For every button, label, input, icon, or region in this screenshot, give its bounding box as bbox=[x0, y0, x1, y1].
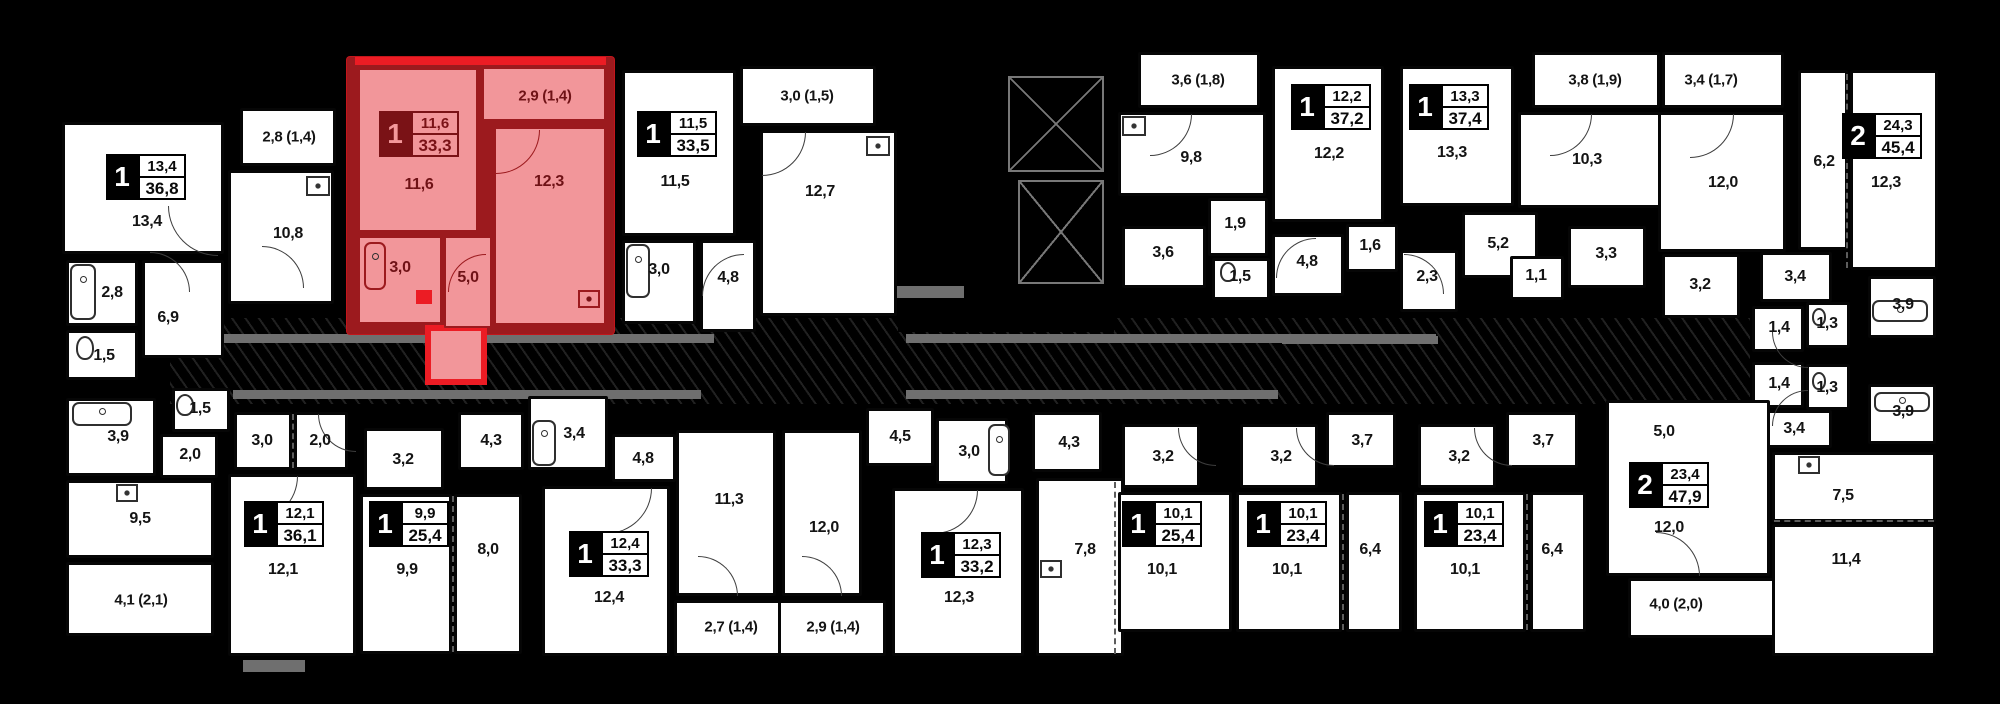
room-area-label: 4,5 bbox=[889, 428, 910, 446]
bathtub-icon bbox=[364, 242, 386, 290]
room-area-label: 3,7 bbox=[1351, 432, 1372, 450]
room-area-label: 2,8 bbox=[101, 284, 122, 302]
room-area-label: 4,3 bbox=[1058, 434, 1079, 452]
unit-info-badge: 112,237,2 bbox=[1291, 84, 1371, 130]
bathtub-icon bbox=[532, 420, 556, 466]
room-area-label: 3,8 (1,9) bbox=[1568, 72, 1621, 89]
unit-rooms-count: 1 bbox=[1122, 501, 1154, 547]
selected-apartment-entrance bbox=[425, 325, 487, 385]
room-area-label: 5,0 bbox=[457, 269, 478, 287]
unit-living-area: 23,4 bbox=[1663, 464, 1707, 486]
room-area-label: 6,4 bbox=[1359, 541, 1380, 559]
unit-info-badge: 112,333,2 bbox=[921, 532, 1001, 578]
corridor-wall-strip bbox=[906, 390, 1278, 399]
unit-areas: 10,123,4 bbox=[1456, 501, 1504, 547]
corridor-wall-strip bbox=[233, 390, 701, 399]
unit-living-area: 9,9 bbox=[403, 503, 447, 525]
unit-areas: 9,925,4 bbox=[401, 501, 449, 547]
bathtub-icon bbox=[70, 264, 96, 320]
room-area-label: 3,3 bbox=[1595, 245, 1616, 263]
unit-total-area: 37,4 bbox=[1443, 108, 1487, 128]
unit-total-area: 36,1 bbox=[278, 525, 322, 545]
room-area-label: 1,5 bbox=[189, 400, 210, 418]
room-area-label: 3,0 bbox=[389, 259, 410, 277]
room-area-label: 12,2 bbox=[1314, 145, 1344, 163]
unit-info-badge: 112,136,1 bbox=[244, 501, 324, 547]
stove-icon bbox=[578, 290, 600, 308]
unit-living-area: 10,1 bbox=[1281, 503, 1325, 525]
room-area-label: 1,5 bbox=[1229, 268, 1250, 286]
unit-areas: 12,237,2 bbox=[1323, 84, 1371, 130]
bathtub-icon bbox=[988, 424, 1010, 476]
room-area-label: 9,5 bbox=[129, 510, 150, 528]
unit-areas: 12,333,2 bbox=[953, 532, 1001, 578]
room bbox=[1346, 492, 1402, 632]
unit-rooms-count: 1 bbox=[244, 501, 276, 547]
room-area-label: 11,5 bbox=[660, 173, 689, 191]
room-area-label: 3,0 bbox=[648, 261, 669, 279]
bathtub-icon bbox=[626, 244, 650, 298]
room-area-label: 3,4 (1,7) bbox=[1684, 72, 1737, 89]
unit-total-area: 36,8 bbox=[140, 178, 184, 198]
room-area-label: 7,5 bbox=[1832, 487, 1853, 505]
unit-rooms-count: 2 bbox=[1629, 462, 1661, 508]
room bbox=[1850, 70, 1938, 270]
room-area-label: 13,3 bbox=[1437, 144, 1467, 162]
dashed-divider bbox=[1774, 520, 1934, 522]
corridor-wall-strip bbox=[886, 286, 964, 298]
unit-info-badge: 113,337,4 bbox=[1409, 84, 1489, 130]
room-area-label: 2,3 bbox=[1416, 268, 1437, 286]
dashed-divider bbox=[1114, 482, 1116, 654]
unit-total-area: 23,4 bbox=[1458, 525, 1502, 545]
room-area-label: 5,2 bbox=[1487, 235, 1508, 253]
room-area-label: 12,7 bbox=[805, 183, 835, 201]
unit-rooms-count: 1 bbox=[1247, 501, 1279, 547]
unit-total-area: 25,4 bbox=[403, 525, 447, 545]
unit-info-badge: 110,123,4 bbox=[1424, 501, 1504, 547]
stove-icon bbox=[306, 176, 330, 196]
unit-living-area: 10,1 bbox=[1156, 503, 1200, 525]
room bbox=[1772, 452, 1936, 522]
room-area-label: 10,3 bbox=[1572, 151, 1602, 169]
unit-rooms-count: 2 bbox=[1842, 113, 1874, 159]
unit-total-area: 33,3 bbox=[603, 555, 647, 575]
room-area-label: 3,0 bbox=[958, 443, 979, 461]
corridor-wall-strip bbox=[243, 660, 305, 672]
unit-total-area: 33,3 bbox=[413, 135, 457, 155]
room-area-label: 4,8 bbox=[632, 450, 653, 468]
room-area-label: 3,6 bbox=[1152, 244, 1173, 262]
room-area-label: 1,9 bbox=[1224, 215, 1245, 233]
room-area-label: 12,4 bbox=[594, 589, 624, 607]
room-area-label: 1,3 bbox=[1816, 315, 1837, 333]
unit-total-area: 33,5 bbox=[671, 135, 715, 155]
room-area-label: 3,2 bbox=[1152, 448, 1173, 466]
unit-areas: 12,433,3 bbox=[601, 531, 649, 577]
room-area-label: 1,3 bbox=[1816, 379, 1837, 397]
selected-apartment-door-accent bbox=[416, 290, 432, 304]
room bbox=[454, 494, 522, 654]
room-area-label: 1,1 bbox=[1525, 267, 1546, 285]
room-area-label: 4,0 (2,0) bbox=[1649, 596, 1702, 613]
room-area-label: 2,8 (1,4) bbox=[262, 129, 315, 146]
corridor-wall-strip bbox=[1282, 336, 1438, 344]
room-area-label: 2,9 (1,4) bbox=[518, 88, 571, 105]
unit-living-area: 12,4 bbox=[603, 533, 647, 555]
unit-total-area: 33,2 bbox=[955, 556, 999, 576]
room-area-label: 2,7 (1,4) bbox=[704, 619, 757, 636]
unit-living-area: 10,1 bbox=[1458, 503, 1502, 525]
unit-rooms-count: 1 bbox=[637, 111, 669, 157]
selected-apartment-window-wall bbox=[355, 57, 606, 65]
room-area-label: 2,0 bbox=[179, 446, 200, 464]
stove-icon bbox=[1040, 560, 1062, 578]
room-area-label: 3,4 bbox=[1784, 268, 1805, 286]
room-area-label: 3,7 bbox=[1532, 432, 1553, 450]
unit-living-area: 13,3 bbox=[1443, 86, 1487, 108]
room-area-label: 3,2 bbox=[1689, 276, 1710, 294]
stair-flight-icon bbox=[1018, 180, 1104, 284]
dashed-divider bbox=[1526, 494, 1528, 630]
room-area-label: 1,4 bbox=[1768, 319, 1789, 337]
room-area-label: 12,3 bbox=[534, 173, 564, 191]
room-area-label: 4,8 bbox=[1296, 253, 1317, 271]
unit-areas: 10,123,4 bbox=[1279, 501, 1327, 547]
room-area-label: 10,1 bbox=[1272, 561, 1302, 579]
unit-info-badge: 110,123,4 bbox=[1247, 501, 1327, 547]
dashed-divider bbox=[1846, 74, 1848, 268]
room-area-label: 12,3 bbox=[944, 589, 974, 607]
room-area-label: 3,2 bbox=[1270, 448, 1291, 466]
room-area-label: 12,0 bbox=[1654, 519, 1684, 537]
room-area-label: 12,0 bbox=[809, 519, 839, 537]
unit-info-badge: 19,925,4 bbox=[369, 501, 449, 547]
room-area-label: 6,2 bbox=[1813, 153, 1834, 171]
room-area-label: 3,2 bbox=[1448, 448, 1469, 466]
unit-total-area: 47,9 bbox=[1663, 486, 1707, 506]
room-area-label: 1,5 bbox=[93, 347, 114, 365]
unit-living-area: 24,3 bbox=[1876, 115, 1920, 137]
unit-rooms-count: 1 bbox=[1291, 84, 1323, 130]
room-area-label: 12,1 bbox=[268, 561, 298, 579]
room-area-label: 6,4 bbox=[1541, 541, 1562, 559]
unit-living-area: 12,1 bbox=[278, 503, 322, 525]
unit-info-badge: 110,125,4 bbox=[1122, 501, 1202, 547]
unit-areas: 11,533,5 bbox=[669, 111, 717, 157]
unit-areas: 24,345,4 bbox=[1874, 113, 1922, 159]
unit-total-area: 45,4 bbox=[1876, 137, 1920, 157]
bathtub-icon bbox=[72, 402, 132, 426]
unit-living-area: 12,3 bbox=[955, 534, 999, 556]
room-area-label: 11,3 bbox=[714, 491, 743, 509]
room-area-label: 2,0 bbox=[309, 432, 330, 450]
unit-areas: 12,136,1 bbox=[276, 501, 324, 547]
unit-rooms-count: 1 bbox=[1424, 501, 1456, 547]
dashed-divider bbox=[452, 496, 454, 652]
room-area-label: 3,6 (1,8) bbox=[1171, 72, 1224, 89]
unit-total-area: 37,2 bbox=[1325, 108, 1369, 128]
room-area-label: 11,4 bbox=[1831, 551, 1860, 569]
room-area-label: 3,2 bbox=[392, 451, 413, 469]
unit-info-badge: 113,436,8 bbox=[106, 154, 186, 200]
room-area-label: 4,8 bbox=[717, 269, 738, 287]
unit-areas: 13,436,8 bbox=[138, 154, 186, 200]
dashed-divider bbox=[1342, 494, 1344, 630]
stair-flight-icon bbox=[1008, 76, 1104, 172]
unit-rooms-count: 1 bbox=[106, 154, 138, 200]
room-area-label: 3,4 bbox=[1783, 420, 1804, 438]
room-area-label: 13,4 bbox=[132, 213, 162, 231]
unit-areas: 23,447,9 bbox=[1661, 462, 1709, 508]
unit-info-badge[interactable]: 111,633,3 bbox=[379, 111, 459, 157]
unit-info-badge: 224,345,4 bbox=[1842, 113, 1922, 159]
unit-total-area: 25,4 bbox=[1156, 525, 1200, 545]
room-area-label: 4,3 bbox=[480, 432, 501, 450]
unit-total-area: 23,4 bbox=[1281, 525, 1325, 545]
room-area-label: 3,9 bbox=[1892, 403, 1913, 421]
room bbox=[1772, 524, 1936, 656]
unit-living-area: 12,2 bbox=[1325, 86, 1369, 108]
room-area-label: 1,4 bbox=[1768, 375, 1789, 393]
room-area-label: 8,0 bbox=[477, 541, 498, 559]
room-area-label: 2,9 (1,4) bbox=[806, 619, 859, 636]
stove-icon bbox=[116, 484, 138, 502]
room-area-label: 3,9 bbox=[1892, 296, 1913, 314]
room-area-label: 9,9 bbox=[396, 561, 417, 579]
unit-areas: 11,633,3 bbox=[411, 111, 459, 157]
room-area-label: 10,1 bbox=[1450, 561, 1480, 579]
unit-rooms-count: 1 bbox=[569, 531, 601, 577]
room-area-label: 7,8 bbox=[1074, 541, 1095, 559]
room-area-label: 10,1 bbox=[1147, 561, 1177, 579]
room-area-label: 1,6 bbox=[1359, 237, 1380, 255]
unit-areas: 10,125,4 bbox=[1154, 501, 1202, 547]
unit-rooms-count: 1 bbox=[921, 532, 953, 578]
room-area-label: 10,8 bbox=[273, 225, 303, 243]
unit-living-area: 13,4 bbox=[140, 156, 184, 178]
dashed-divider bbox=[292, 414, 294, 468]
room-area-label: 12,0 bbox=[1708, 174, 1738, 192]
stove-icon bbox=[1122, 116, 1146, 136]
unit-areas: 13,337,4 bbox=[1441, 84, 1489, 130]
room-area-label: 3,4 bbox=[563, 425, 584, 443]
room-area-label: 3,0 (1,5) bbox=[780, 88, 833, 105]
room-area-label: 3,9 bbox=[107, 428, 128, 446]
unit-info-badge: 112,433,3 bbox=[569, 531, 649, 577]
toilet-icon bbox=[76, 336, 94, 360]
room-area-label: 3,0 bbox=[251, 432, 272, 450]
unit-info-badge: 223,447,9 bbox=[1629, 462, 1709, 508]
unit-info-badge: 111,533,5 bbox=[637, 111, 717, 157]
room-area-label: 9,8 bbox=[1180, 149, 1201, 167]
floor-plan-canvas: 13,42,8 (1,4)10,82,86,91,511,62,9 (1,4)1… bbox=[0, 0, 2000, 704]
unit-living-area: 11,5 bbox=[671, 113, 715, 135]
unit-rooms-count: 1 bbox=[369, 501, 401, 547]
unit-rooms-count: 1 bbox=[379, 111, 411, 157]
room-area-label: 12,3 bbox=[1871, 174, 1901, 192]
room-area-label: 5,0 bbox=[1653, 423, 1674, 441]
room-area-label: 6,9 bbox=[157, 309, 178, 327]
unit-living-area: 11,6 bbox=[413, 113, 457, 135]
stove-icon bbox=[1798, 456, 1820, 474]
room bbox=[1530, 492, 1586, 632]
room-area-label: 4,1 (2,1) bbox=[114, 592, 167, 609]
door-arc-icon bbox=[150, 252, 190, 292]
unit-rooms-count: 1 bbox=[1409, 84, 1441, 130]
room-area-label: 11,6 bbox=[404, 176, 433, 194]
stove-icon bbox=[866, 136, 890, 156]
